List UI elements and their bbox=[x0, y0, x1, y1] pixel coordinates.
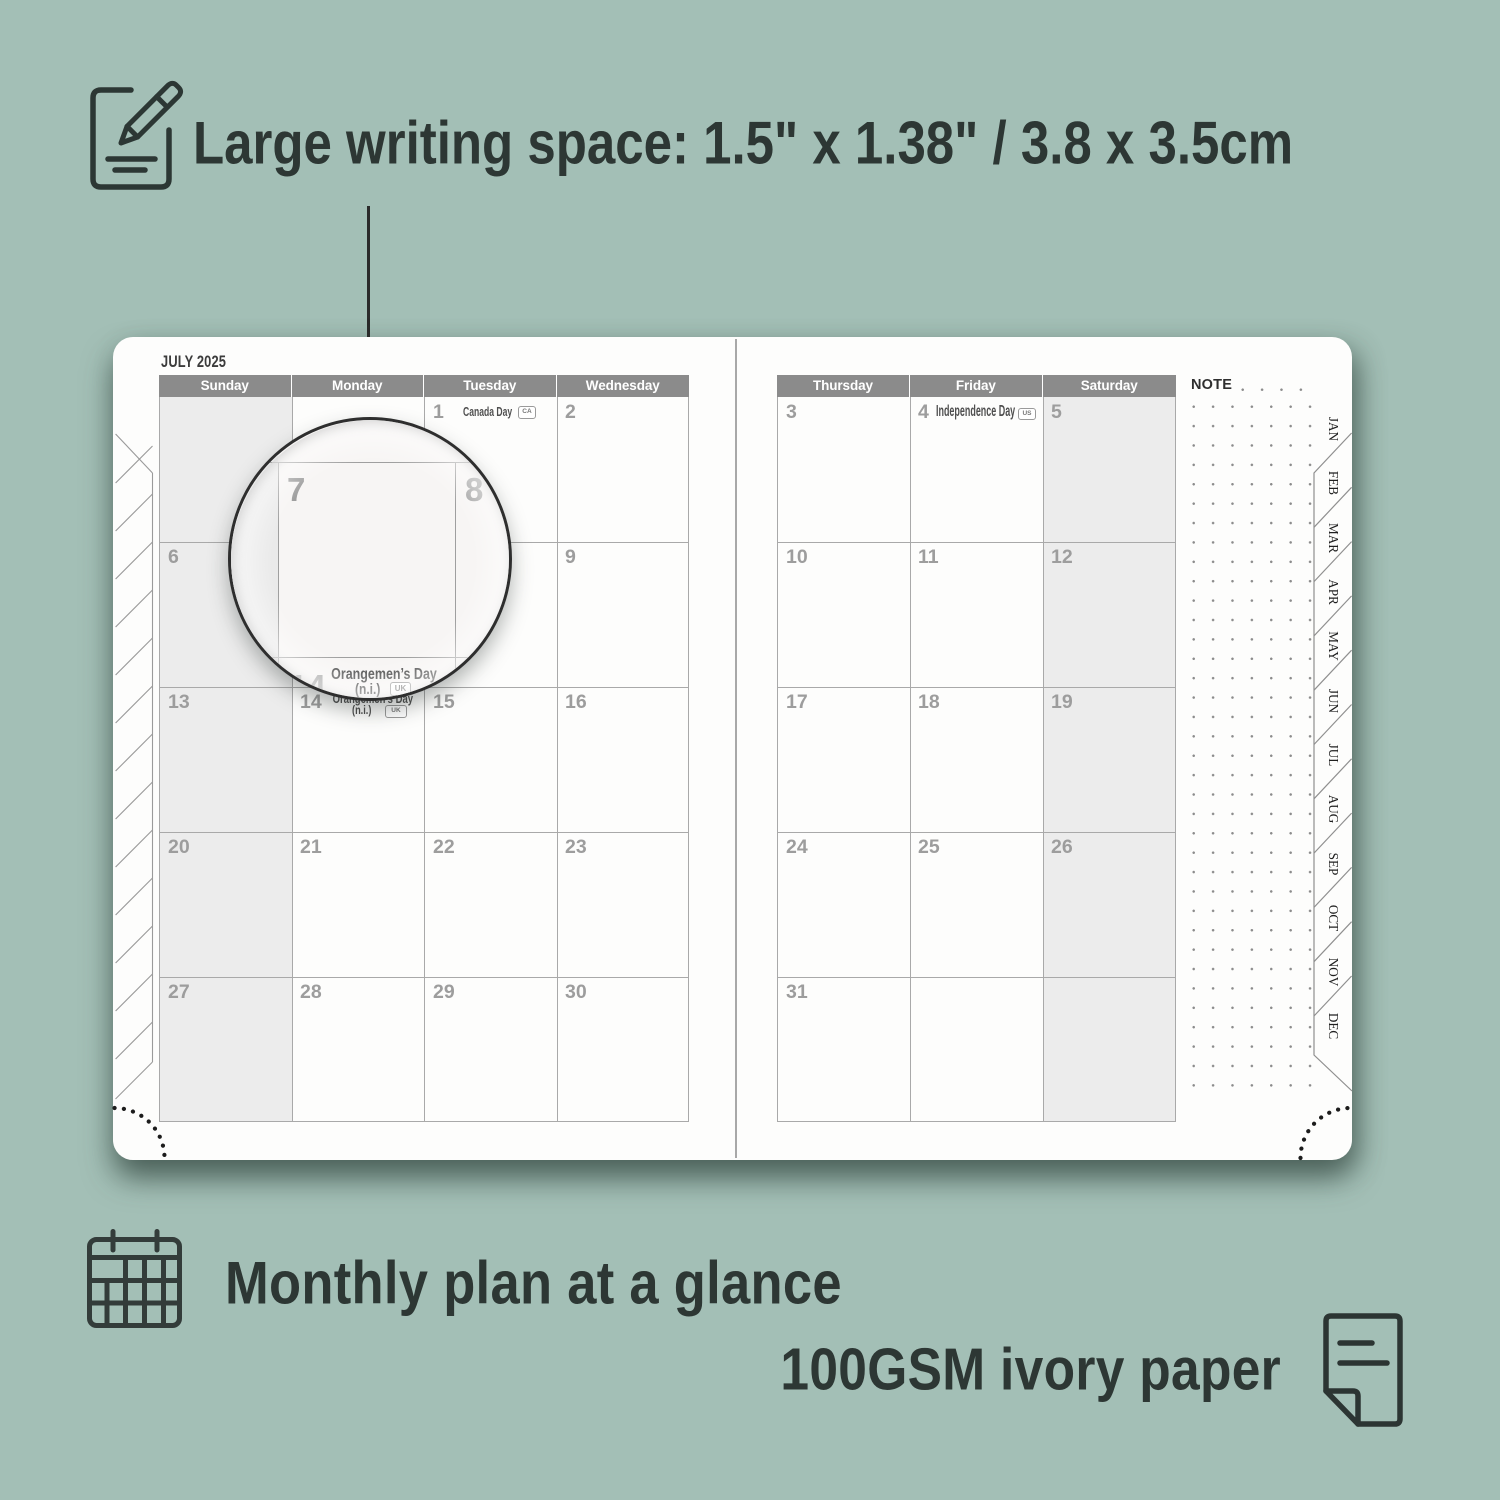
svg-text:MAR: MAR bbox=[1326, 523, 1341, 553]
svg-text:MAY: MAY bbox=[1326, 631, 1341, 661]
svg-text:JUN: JUN bbox=[1326, 689, 1341, 714]
svg-text:OCT: OCT bbox=[1326, 905, 1341, 931]
svg-text:APR: APR bbox=[1326, 579, 1341, 605]
svg-text:NOV: NOV bbox=[1326, 958, 1341, 987]
svg-text:FEB: FEB bbox=[1326, 471, 1341, 495]
svg-text:DEC: DEC bbox=[1326, 1013, 1341, 1040]
svg-text:AUG: AUG bbox=[1326, 795, 1341, 824]
svg-text:JUL: JUL bbox=[1326, 744, 1341, 767]
svg-text:JAN: JAN bbox=[1326, 417, 1341, 442]
svg-text:SEP: SEP bbox=[1326, 853, 1341, 876]
